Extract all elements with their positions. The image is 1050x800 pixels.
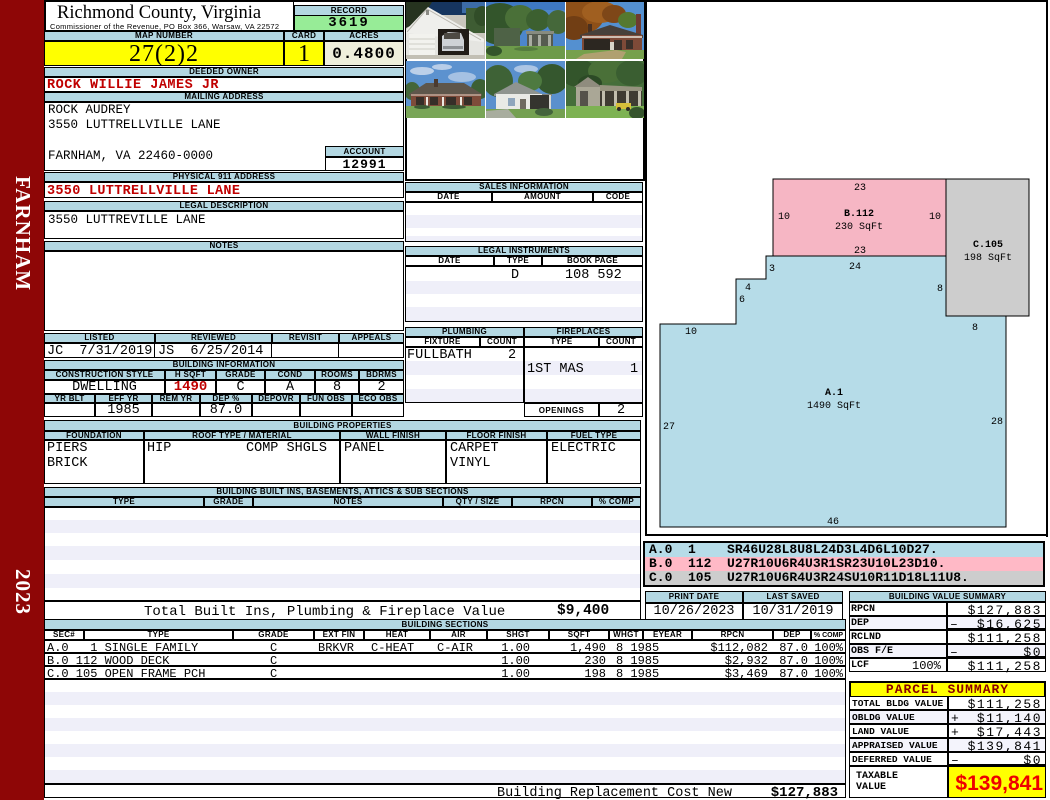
svg-text:10: 10 <box>685 327 697 338</box>
svg-text:10: 10 <box>778 212 790 223</box>
svg-text:23: 23 <box>854 183 866 194</box>
svg-text:4: 4 <box>745 283 751 294</box>
svg-text:28: 28 <box>991 417 1003 428</box>
svg-text:10: 10 <box>929 212 941 223</box>
svg-text:8: 8 <box>937 284 943 295</box>
svg-text:27: 27 <box>663 422 675 433</box>
svg-text:198 SqFt: 198 SqFt <box>964 253 1012 264</box>
svg-text:6: 6 <box>739 295 745 306</box>
svg-text:A.1: A.1 <box>825 388 843 399</box>
svg-text:230 SqFt: 230 SqFt <box>835 222 883 233</box>
svg-text:24: 24 <box>849 262 861 273</box>
svg-text:3: 3 <box>769 264 775 275</box>
svg-text:23: 23 <box>854 246 866 257</box>
svg-text:B.112: B.112 <box>844 209 874 220</box>
svg-text:8: 8 <box>972 323 978 334</box>
svg-text:C.105: C.105 <box>973 240 1003 251</box>
svg-text:1490 SqFt: 1490 SqFt <box>807 401 861 412</box>
svg-text:46: 46 <box>827 517 839 528</box>
